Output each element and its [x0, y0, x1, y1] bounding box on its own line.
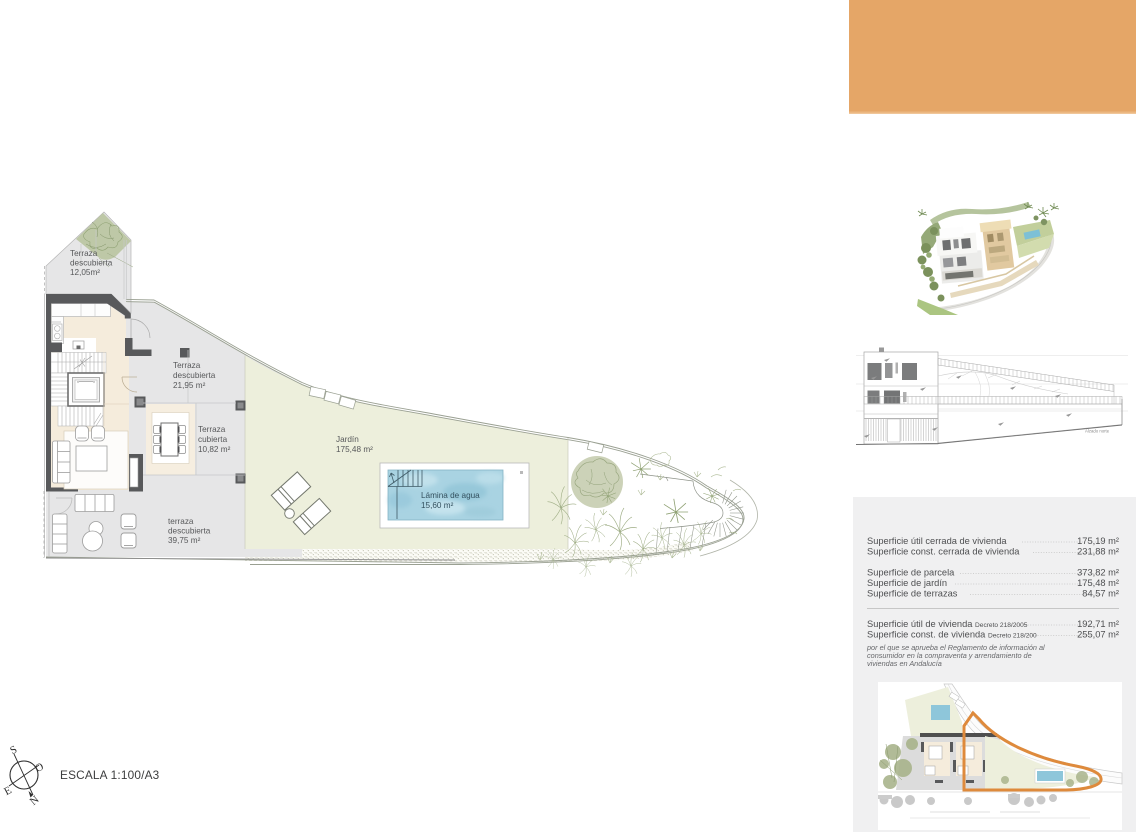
svg-text:175,48 m²: 175,48 m² [336, 445, 373, 454]
svg-text:Superficie útil cerrada de viv: Superficie útil cerrada de vivienda [867, 536, 1007, 546]
svg-text:Terraza: Terraza [70, 249, 98, 258]
svg-text:39,75 m²: 39,75 m² [168, 536, 201, 545]
svg-text:Lámina de agua: Lámina de agua [421, 491, 480, 500]
svg-text:descubierta: descubierta [168, 527, 211, 536]
svg-text:192,71 m²: 192,71 m² [1077, 619, 1119, 629]
svg-text:descubierta: descubierta [173, 371, 216, 380]
svg-text:ESCALA 1:100/A3: ESCALA 1:100/A3 [60, 768, 160, 782]
svg-text:175,48 m²: 175,48 m² [1077, 578, 1119, 588]
svg-text:175,19 m²: 175,19 m² [1077, 536, 1119, 546]
svg-text:terraza: terraza [168, 517, 194, 526]
svg-text:Superficie de jardín: Superficie de jardín [867, 578, 947, 588]
svg-text:Terraza: Terraza [198, 425, 226, 434]
svg-text:Superficie de parcela: Superficie de parcela [867, 568, 955, 578]
svg-text:255,07 m²: 255,07 m² [1077, 630, 1119, 640]
svg-text:373,82 m²: 373,82 m² [1077, 568, 1119, 578]
svg-text:viviendas en Andalucía: viviendas en Andalucía [867, 659, 942, 668]
svg-text:10,82 m²: 10,82 m² [198, 445, 231, 454]
svg-text:Alzado norte: Alzado norte [1085, 429, 1110, 434]
svg-text:15,60 m²: 15,60 m² [421, 501, 454, 510]
svg-text:12,05m²: 12,05m² [70, 268, 100, 277]
svg-text:cubierta: cubierta [198, 435, 228, 444]
svg-text:21,95 m²: 21,95 m² [173, 381, 206, 390]
svg-text:descubierta: descubierta [70, 259, 113, 268]
svg-text:231,88 m²: 231,88 m² [1077, 547, 1119, 557]
svg-text:Jardín: Jardín [336, 435, 359, 444]
svg-text:Terraza: Terraza [173, 361, 201, 370]
svg-text:Superficie const. cerrada de v: Superficie const. cerrada de vivienda [867, 547, 1020, 557]
svg-text:Superficie de terrazas: Superficie de terrazas [867, 589, 958, 599]
svg-text:84,57 m²: 84,57 m² [1082, 589, 1119, 599]
